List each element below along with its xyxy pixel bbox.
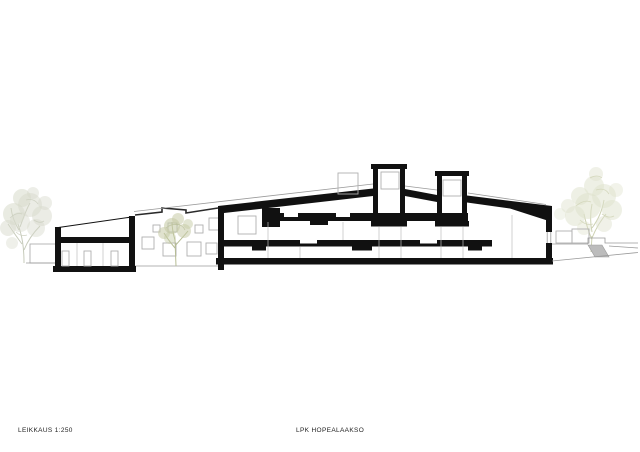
main-right-wall	[546, 206, 552, 264]
site-stairs-right	[552, 229, 638, 261]
tower-1-window	[381, 172, 399, 189]
wing-roof-line	[55, 217, 135, 229]
drawing-title-label: LEIKKAUS 1:250	[18, 427, 73, 434]
tower-2-base	[435, 221, 469, 227]
skylight-tower-1	[371, 164, 407, 221]
tower-2-right-wall	[462, 174, 467, 221]
wing-right-wall	[129, 216, 135, 272]
wing-floor-slab	[53, 266, 136, 272]
tower-1-right-wall	[400, 167, 405, 221]
middle-floor-slab	[224, 240, 492, 247]
ceiling-edge-beam	[262, 208, 280, 227]
left-wing-section	[53, 216, 136, 272]
left-tree	[0, 187, 52, 263]
tower-2-window	[443, 180, 461, 196]
section-drawing	[0, 0, 640, 452]
far-wall-window	[238, 216, 256, 234]
main-section	[216, 173, 553, 270]
tower-1-left-wall	[373, 167, 378, 221]
drawing-sheet: LEIKKAUS 1:250 LPK HOPEALAAKSO	[0, 0, 640, 452]
right-tree	[554, 167, 623, 252]
tower-2-left-wall	[437, 174, 442, 221]
left-site-structure	[26, 244, 56, 263]
wing-left-wall	[55, 227, 61, 272]
tower-1-base	[371, 221, 407, 227]
roof-slab-middle	[405, 189, 437, 202]
wing-doors	[62, 251, 118, 266]
wing-ceiling-slab	[57, 237, 133, 243]
project-name-label: LPK HOPEALAAKSO	[296, 427, 364, 434]
ground-floor-slab	[216, 258, 553, 265]
roof-slab-left	[218, 189, 373, 214]
middle-tree	[158, 213, 193, 266]
